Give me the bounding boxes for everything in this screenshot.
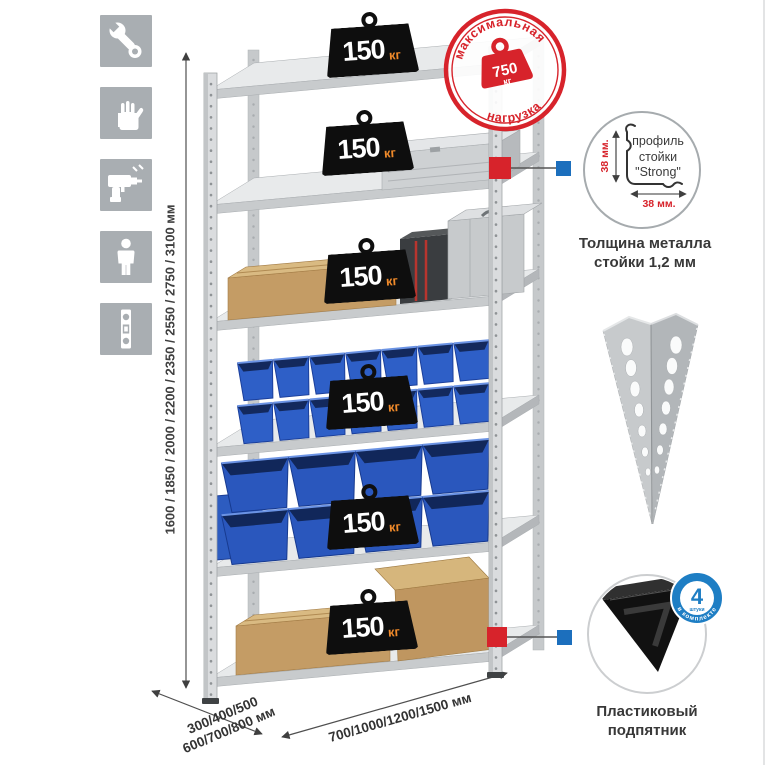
foot-caption: Пластиковый подпятник [571, 703, 723, 741]
profile-dim-bottom: 38 мм. [626, 198, 692, 210]
red-marker-bottom [487, 627, 507, 647]
blue-marker-bottom [557, 630, 572, 645]
profile-label-line2: стойки [614, 150, 702, 166]
red-marker-top [489, 157, 511, 179]
drill-icon [100, 159, 152, 211]
profile-caption-line2: стойки 1,2 мм [570, 254, 720, 273]
load-value: 150 [342, 508, 386, 538]
quantity-badge: 4 штуки в комплекте [671, 572, 723, 624]
load-unit: кг [387, 400, 400, 414]
shelf-load-badge-3: 150кг [320, 235, 416, 304]
profile-label: профиль стойки "Strong" [614, 134, 702, 181]
profile-caption: Толщина металла стойки 1,2 мм [570, 235, 720, 273]
load-value: 150 [341, 613, 385, 643]
badge-number: 4 [691, 584, 704, 609]
load-value: 150 [337, 134, 381, 164]
profile-label-line3: "Strong" [614, 165, 702, 181]
profile-dim-side: 38 мм. [599, 128, 611, 184]
product-infographic: максимальная нагрузка 750 кг [0, 0, 765, 765]
shelf-load-badge-6: 150кг [322, 586, 418, 655]
foot-caption-line2: подпятник [571, 722, 723, 741]
load-value: 150 [342, 36, 386, 66]
blue-marker-top [556, 161, 571, 176]
load-unit: кг [388, 520, 401, 534]
gloves-icon [100, 87, 152, 139]
load-unit: кг [387, 625, 400, 639]
wrench-icon [100, 15, 152, 67]
foot-caption-line1: Пластиковый [571, 703, 723, 722]
profile-caption-line1: Толщина металла [570, 235, 720, 254]
badge-unit: штуки [689, 607, 704, 613]
max-load-stamp: максимальная нагрузка 750 кг [435, 0, 575, 140]
load-unit: кг [383, 146, 396, 160]
upright-post-image [603, 314, 698, 524]
height-dimensions-label: 1600 / 1850 / 2000 / 2200 / 2350 / 2550 … [163, 190, 178, 550]
person-icon [100, 231, 152, 283]
feature-icon-column [100, 15, 152, 375]
shelf-load-badge-1: 150кг [323, 9, 419, 78]
level-icon [100, 303, 152, 355]
load-unit: кг [388, 48, 401, 62]
shelf-load-badge-4: 150кг [322, 361, 418, 430]
shelf-load-badge-2: 150кг [318, 107, 414, 176]
load-value: 150 [339, 262, 383, 292]
load-unit: кг [385, 274, 398, 288]
shelf-load-badge-5: 150кг [323, 481, 419, 550]
plastic-foot-detail: 4 штуки в комплекте [588, 572, 723, 693]
profile-label-line1: профиль [614, 134, 702, 150]
load-value: 150 [341, 388, 385, 418]
